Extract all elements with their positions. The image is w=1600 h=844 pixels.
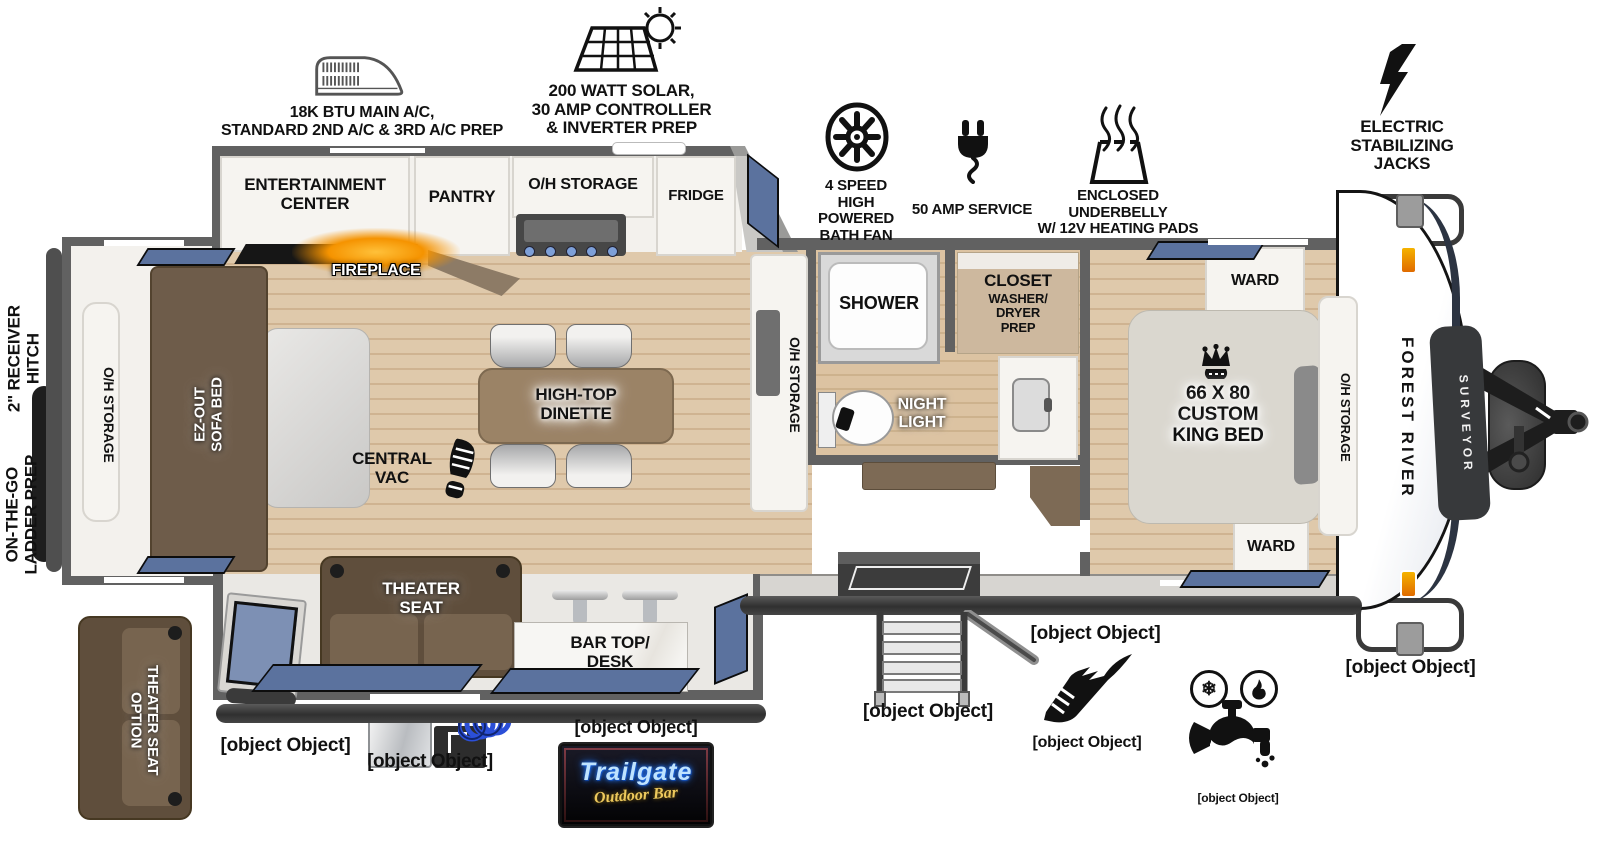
marker-light — [1400, 246, 1417, 274]
clearance-light — [370, 694, 480, 700]
sofa-cupholder — [168, 792, 182, 806]
fridge-cabinet — [656, 156, 736, 256]
bar-stool — [552, 590, 608, 624]
rear-clearance-light — [104, 577, 184, 583]
awning-11-label: [object Object] — [218, 736, 353, 757]
dinette-chair — [490, 444, 556, 488]
roof-vent — [612, 142, 686, 155]
jack-latch-top — [1396, 194, 1424, 228]
hall-bench — [862, 462, 996, 490]
bedroom-window-bottom — [1179, 570, 1330, 588]
flip-up-window-label: [object Object] — [556, 718, 716, 738]
bath-fan-icon — [824, 102, 890, 172]
rear-bumper — [46, 248, 62, 572]
clearance-light — [1208, 239, 1308, 245]
theater-sofa-cushion — [330, 614, 418, 670]
power-plug-icon — [950, 118, 998, 184]
kitchen-oh-storage-label: O/H STORAGE — [514, 176, 652, 194]
slam-latch-label: [object Object] — [1328, 658, 1493, 679]
awning-12-label: [object Object] — [1028, 624, 1163, 645]
entertainment-label: ENTERTAINMENT CENTER — [226, 176, 404, 213]
goodyear-label: [object Object] — [1012, 734, 1162, 752]
solar-icon — [570, 4, 682, 82]
entry-step-label: [object Object] — [848, 702, 1008, 723]
entry-steps-icon — [866, 610, 1041, 708]
shower-label: SHOWER — [820, 294, 938, 314]
ez-sofa-label: EZ-OUT SOFA BED — [193, 340, 226, 490]
bath-divider-wall — [945, 250, 955, 352]
bedroom-divider-wall-lower — [1080, 552, 1090, 576]
lightning-bolt-icon — [1376, 44, 1418, 116]
snowflake-icon: ❄ — [1190, 670, 1228, 708]
receiver-hitch-label: 2" RECEIVER HITCH — [5, 284, 42, 434]
corner-cabinet — [1030, 466, 1080, 526]
king-bed-label: 66 X 80 CUSTOM KING BED — [1148, 384, 1288, 447]
vanity-faucet — [1044, 398, 1052, 412]
sofa-cupholder — [496, 564, 510, 578]
jack-latch-bottom — [1396, 622, 1424, 656]
closet-title: CLOSET — [959, 272, 1077, 291]
bar-top-label: BAR TOP/ DESK — [540, 634, 680, 671]
underbelly-heat-icon — [1084, 104, 1154, 188]
rv-floorplan: 18K BTU MAIN A/C, STANDARD 2ND A/C & 3RD… — [0, 0, 1600, 844]
rear-window-top — [136, 248, 235, 266]
trailgate-logo: Trailgate Outdoor Bar — [560, 744, 712, 826]
spray-port-label: [object Object] — [1158, 792, 1318, 805]
rear-clearance-light — [104, 240, 184, 246]
ward-bottom-label: WARD — [1233, 538, 1309, 556]
theater-seat-label: THEATER SEAT — [366, 580, 476, 617]
rear-window-bottom — [136, 556, 235, 574]
amp-service-label: 50 AMP SERVICE — [908, 202, 1036, 219]
cooktop-burners — [524, 246, 618, 256]
flame-icon — [1240, 670, 1278, 708]
theater-sofa-cushion — [424, 614, 512, 670]
solar-label: 200 WATT SOLAR, 30 AMP CONTROLLER & INVE… — [524, 82, 719, 138]
entry-landing-outline — [848, 566, 972, 590]
marker-light — [1400, 570, 1417, 598]
pantry-label: PANTRY — [416, 188, 508, 207]
underbelly-label: ENCLOSED UNDERBELLY W/ 12V HEATING PADS — [1033, 188, 1203, 238]
bed-oh-storage-label: O/H STORAGE — [1326, 330, 1352, 505]
closet-sub: WASHER/ DRYER PREP — [959, 292, 1077, 335]
dinette-chair — [490, 324, 556, 368]
crown-icon — [1196, 344, 1236, 382]
outside-kitchen-label: [object Object] — [340, 752, 520, 773]
ac-label: 18K BTU MAIN A/C, STANDARD 2ND A/C & 3RD… — [212, 104, 512, 139]
night-light-label: NIGHT LIGHT — [882, 396, 962, 431]
cooktop-inner — [524, 220, 618, 242]
rear-oh-storage-label: O/H STORAGE — [86, 330, 116, 500]
clearance-light — [330, 148, 425, 153]
ladder-prep-label: ON-THE-GO LADDER PREP — [3, 440, 40, 590]
bar-stool — [622, 590, 678, 624]
ac-unit-icon — [310, 50, 408, 100]
bed-pillow — [1294, 365, 1320, 485]
theater-seat-option-label: THEATER SEAT OPTION — [116, 640, 160, 800]
stab-jacks-label: ELECTRIC STABILIZING JACKS — [1342, 118, 1462, 174]
bath-fan-label: 4 SPEED HIGH POWERED BATH FAN — [798, 178, 914, 244]
ward-top-label: WARD — [1205, 272, 1305, 290]
goodyear-wingfoot-icon — [1038, 648, 1134, 730]
slide-window-left — [251, 664, 483, 692]
fridge-label: FRIDGE — [656, 188, 736, 205]
sofa-cupholder — [168, 626, 182, 640]
dinette-label: HIGH-TOP DINETTE — [488, 386, 664, 423]
fireplace-label: FIREPLACE — [316, 262, 436, 280]
island-oh-storage-label: O/H STORAGE — [776, 292, 802, 477]
forest-river-label: FOREST RIVER — [1388, 308, 1416, 528]
awning-rail-12ft — [740, 596, 1362, 615]
bedroom-divider-wall — [1080, 250, 1090, 520]
dinette-chair — [566, 444, 632, 488]
spray-port-faucet-icon — [1182, 700, 1282, 778]
central-vac-label: CENTRAL VAC — [342, 450, 442, 487]
sofa-cupholder — [330, 564, 344, 578]
slide-window-right — [490, 668, 700, 694]
dinette-chair — [566, 324, 632, 368]
